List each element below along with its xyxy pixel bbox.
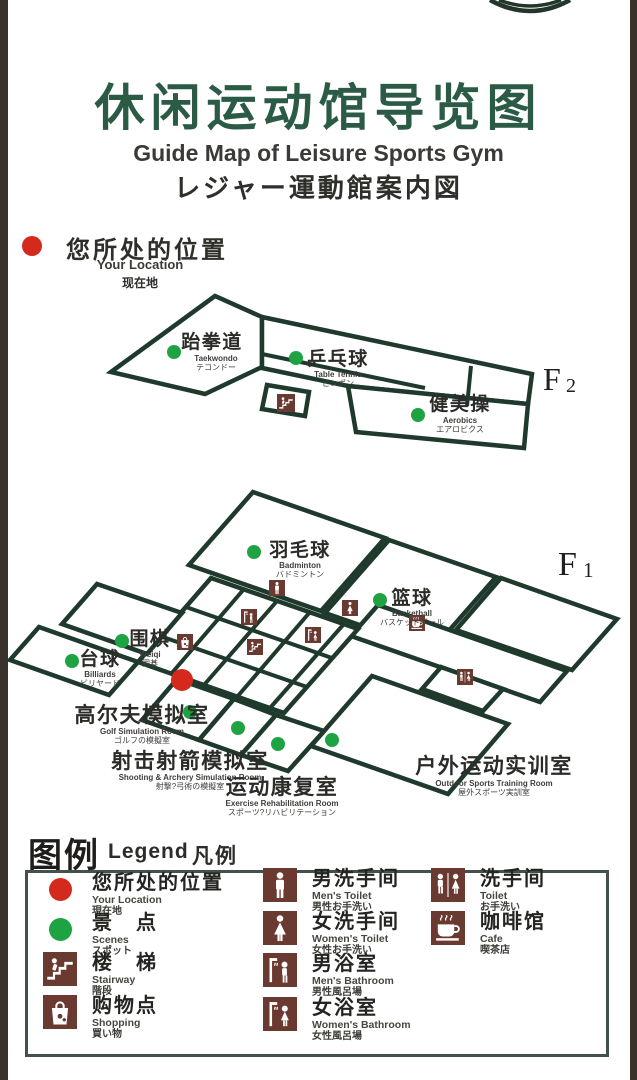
legend-item-cafe: 咖啡馆 Cafe 喫茶店 bbox=[426, 911, 546, 957]
svg-text:高尔夫模拟室: 高尔夫模拟室 bbox=[75, 703, 210, 727]
legend-item-stairway: 楼 梯 Stairway 階段 bbox=[38, 952, 158, 998]
legend-ja: 買い物 bbox=[92, 1029, 158, 1041]
scene-dot bbox=[247, 545, 261, 559]
stairway-icon bbox=[247, 639, 263, 655]
legend-en: Cafe bbox=[480, 933, 546, 945]
legend-zh: 您所处的位置 bbox=[92, 872, 224, 894]
legend-en: Men's Toilet bbox=[312, 890, 400, 902]
legend-item-mens-toilet: 男洗手间 Men's Toilet 男性お手洗い bbox=[258, 868, 400, 914]
floor-label-f1-num: 1 bbox=[583, 558, 594, 582]
svg-text:台球: 台球 bbox=[79, 647, 120, 670]
svg-text:户外运动实训室: 户外运动实训室 bbox=[415, 754, 573, 778]
scene-dot bbox=[325, 733, 339, 747]
svg-text:Billiards: Billiards bbox=[84, 670, 116, 679]
partial-emblem-logo bbox=[470, 0, 590, 24]
svg-text:Outdoor Sports Training Room: Outdoor Sports Training Room bbox=[435, 779, 552, 788]
legend-item-toilet: 洗手间 Toilet お手洗い bbox=[426, 868, 546, 914]
legend-en: Stairway bbox=[92, 974, 158, 986]
legend-en: Scenes bbox=[92, 934, 158, 946]
scene-dot bbox=[167, 345, 181, 359]
svg-text:篮球: 篮球 bbox=[390, 586, 432, 609]
svg-text:Golf Simulation Room: Golf Simulation Room bbox=[100, 727, 184, 736]
legend-zh: 咖啡馆 bbox=[480, 911, 546, 933]
scene-dot bbox=[65, 654, 79, 668]
your-location-marker bbox=[171, 669, 193, 691]
svg-text:Basketball: Basketball bbox=[392, 609, 432, 618]
legend-en: Women's Bathroom bbox=[312, 1019, 411, 1031]
stairway-icon bbox=[277, 394, 295, 412]
page-title-en: Guide Map of Leisure Sports Gym bbox=[0, 140, 637, 167]
legend-en: Men's Bathroom bbox=[312, 975, 394, 987]
mens-toilet-icon bbox=[269, 580, 285, 596]
floor-label-f2: F bbox=[543, 361, 561, 397]
you-are-here-dot bbox=[22, 236, 42, 256]
legend-en: Toilet bbox=[480, 890, 546, 902]
svg-text:Table Tennis: Table Tennis bbox=[314, 370, 362, 379]
guide-map-sign: 休闲运动馆导览图 Guide Map of Leisure Sports Gym… bbox=[0, 0, 637, 1080]
shopping-icon bbox=[43, 995, 77, 1029]
svg-text:屋外スポーツ実訓室: 屋外スポーツ実訓室 bbox=[458, 787, 530, 797]
womens-bathroom-icon bbox=[263, 997, 297, 1031]
your-location-dot bbox=[49, 878, 72, 901]
legend-en: Your Location bbox=[92, 894, 224, 906]
svg-text:射击射箭模拟室: 射击射箭模拟室 bbox=[110, 749, 269, 773]
womens-bathroom-icon bbox=[305, 627, 321, 643]
svg-text:バスケットボール: バスケットボール bbox=[380, 618, 444, 627]
womens-toilet-icon bbox=[342, 600, 358, 616]
legend-zh: 女浴室 bbox=[312, 997, 411, 1019]
legend-title-ja: 凡例 bbox=[192, 840, 238, 870]
scene-dot bbox=[373, 593, 387, 607]
svg-text:ピンポン: ピンポン bbox=[322, 379, 354, 388]
legend-item-mens-bathroom: 男浴室 Men's Bathroom 男性風呂場 bbox=[258, 953, 394, 999]
cafe-icon bbox=[431, 911, 465, 945]
svg-text:ビリヤード: ビリヤード bbox=[80, 679, 120, 688]
svg-text:バドミントン: バドミントン bbox=[276, 570, 324, 579]
legend-item-womens-toilet: 女洗手间 Women's Toilet 女性お手洗い bbox=[258, 911, 400, 957]
floor-plan-f2: 跆拳道 Taekwondo テコンドー 乒乓球 Table Tennis ピンポ… bbox=[0, 288, 637, 463]
stairway-icon bbox=[43, 952, 77, 986]
floor-plan-f1: 羽毛球 Badminton バドミントン 篮球 Basketball バスケット… bbox=[0, 480, 637, 820]
legend-zh: 景 点 bbox=[92, 912, 158, 934]
legend-item-shopping: 购物点 Shopping 買い物 bbox=[38, 995, 158, 1041]
legend-en: Women's Toilet bbox=[312, 933, 400, 945]
legend-ja: 喫茶店 bbox=[480, 945, 546, 957]
scene-dot bbox=[231, 721, 245, 735]
shopping-icon bbox=[177, 634, 193, 650]
page-title: 休闲运动馆导览图 bbox=[0, 68, 637, 140]
legend-ja: 女性風呂場 bbox=[312, 1031, 411, 1043]
svg-text:跆拳道: 跆拳道 bbox=[181, 330, 243, 353]
svg-text:Badminton: Badminton bbox=[279, 561, 321, 570]
svg-text:Exercise Rehabilitation Room: Exercise Rehabilitation Room bbox=[226, 799, 339, 808]
legend-zh: 楼 梯 bbox=[92, 952, 158, 974]
svg-text:射撃?弓術の模擬室: 射撃?弓術の模擬室 bbox=[156, 781, 224, 791]
legend-en: Shopping bbox=[92, 1017, 158, 1029]
legend-zh: 女洗手间 bbox=[312, 911, 400, 933]
svg-text:Weiqi: Weiqi bbox=[139, 650, 160, 659]
svg-text:Taekwondo: Taekwondo bbox=[194, 354, 238, 363]
mens-bathroom-icon bbox=[241, 609, 257, 625]
toilet-icon bbox=[431, 868, 465, 902]
svg-text:Aerobics: Aerobics bbox=[443, 416, 478, 425]
svg-text:エアロビクス: エアロビクス bbox=[436, 425, 484, 434]
svg-text:乒乓球: 乒乓球 bbox=[307, 347, 369, 370]
you-are-here-en: Your Location bbox=[0, 257, 280, 272]
legend-zh: 洗手间 bbox=[480, 868, 546, 890]
svg-text:囲碁: 囲碁 bbox=[142, 658, 158, 668]
svg-text:ゴルフの模擬室: ゴルフの模擬室 bbox=[114, 735, 170, 745]
legend-title-en: Legend bbox=[108, 840, 189, 864]
scene-dot bbox=[49, 918, 72, 941]
scene-dot bbox=[411, 408, 425, 422]
mens-toilet-icon bbox=[263, 868, 297, 902]
toilet-icon bbox=[457, 669, 473, 685]
svg-text:テコンドー: テコンドー bbox=[196, 363, 236, 372]
svg-text:运动康复室: 运动康复室 bbox=[226, 775, 339, 799]
svg-text:羽毛球: 羽毛球 bbox=[269, 538, 331, 561]
scene-dot bbox=[271, 737, 285, 751]
womens-toilet-icon bbox=[263, 911, 297, 945]
svg-text:健美操: 健美操 bbox=[429, 392, 491, 415]
page-title-ja: レジャー運動館案内図 bbox=[0, 168, 637, 205]
svg-text:围棋: 围棋 bbox=[129, 627, 170, 650]
mens-bathroom-icon bbox=[263, 953, 297, 987]
legend-zh: 男洗手间 bbox=[312, 868, 400, 890]
legend-zh: 男浴室 bbox=[312, 953, 394, 975]
scene-dot bbox=[289, 351, 303, 365]
floor-label-f2-num: 2 bbox=[566, 375, 576, 397]
legend-item-womens-bathroom: 女浴室 Women's Bathroom 女性風呂場 bbox=[258, 997, 411, 1043]
scene-dot bbox=[115, 634, 129, 648]
svg-text:スポーツ?リハビリテーション: スポーツ?リハビリテーション bbox=[228, 808, 336, 817]
legend-zh: 购物点 bbox=[92, 995, 158, 1017]
floor-label-f1: F bbox=[558, 546, 577, 583]
